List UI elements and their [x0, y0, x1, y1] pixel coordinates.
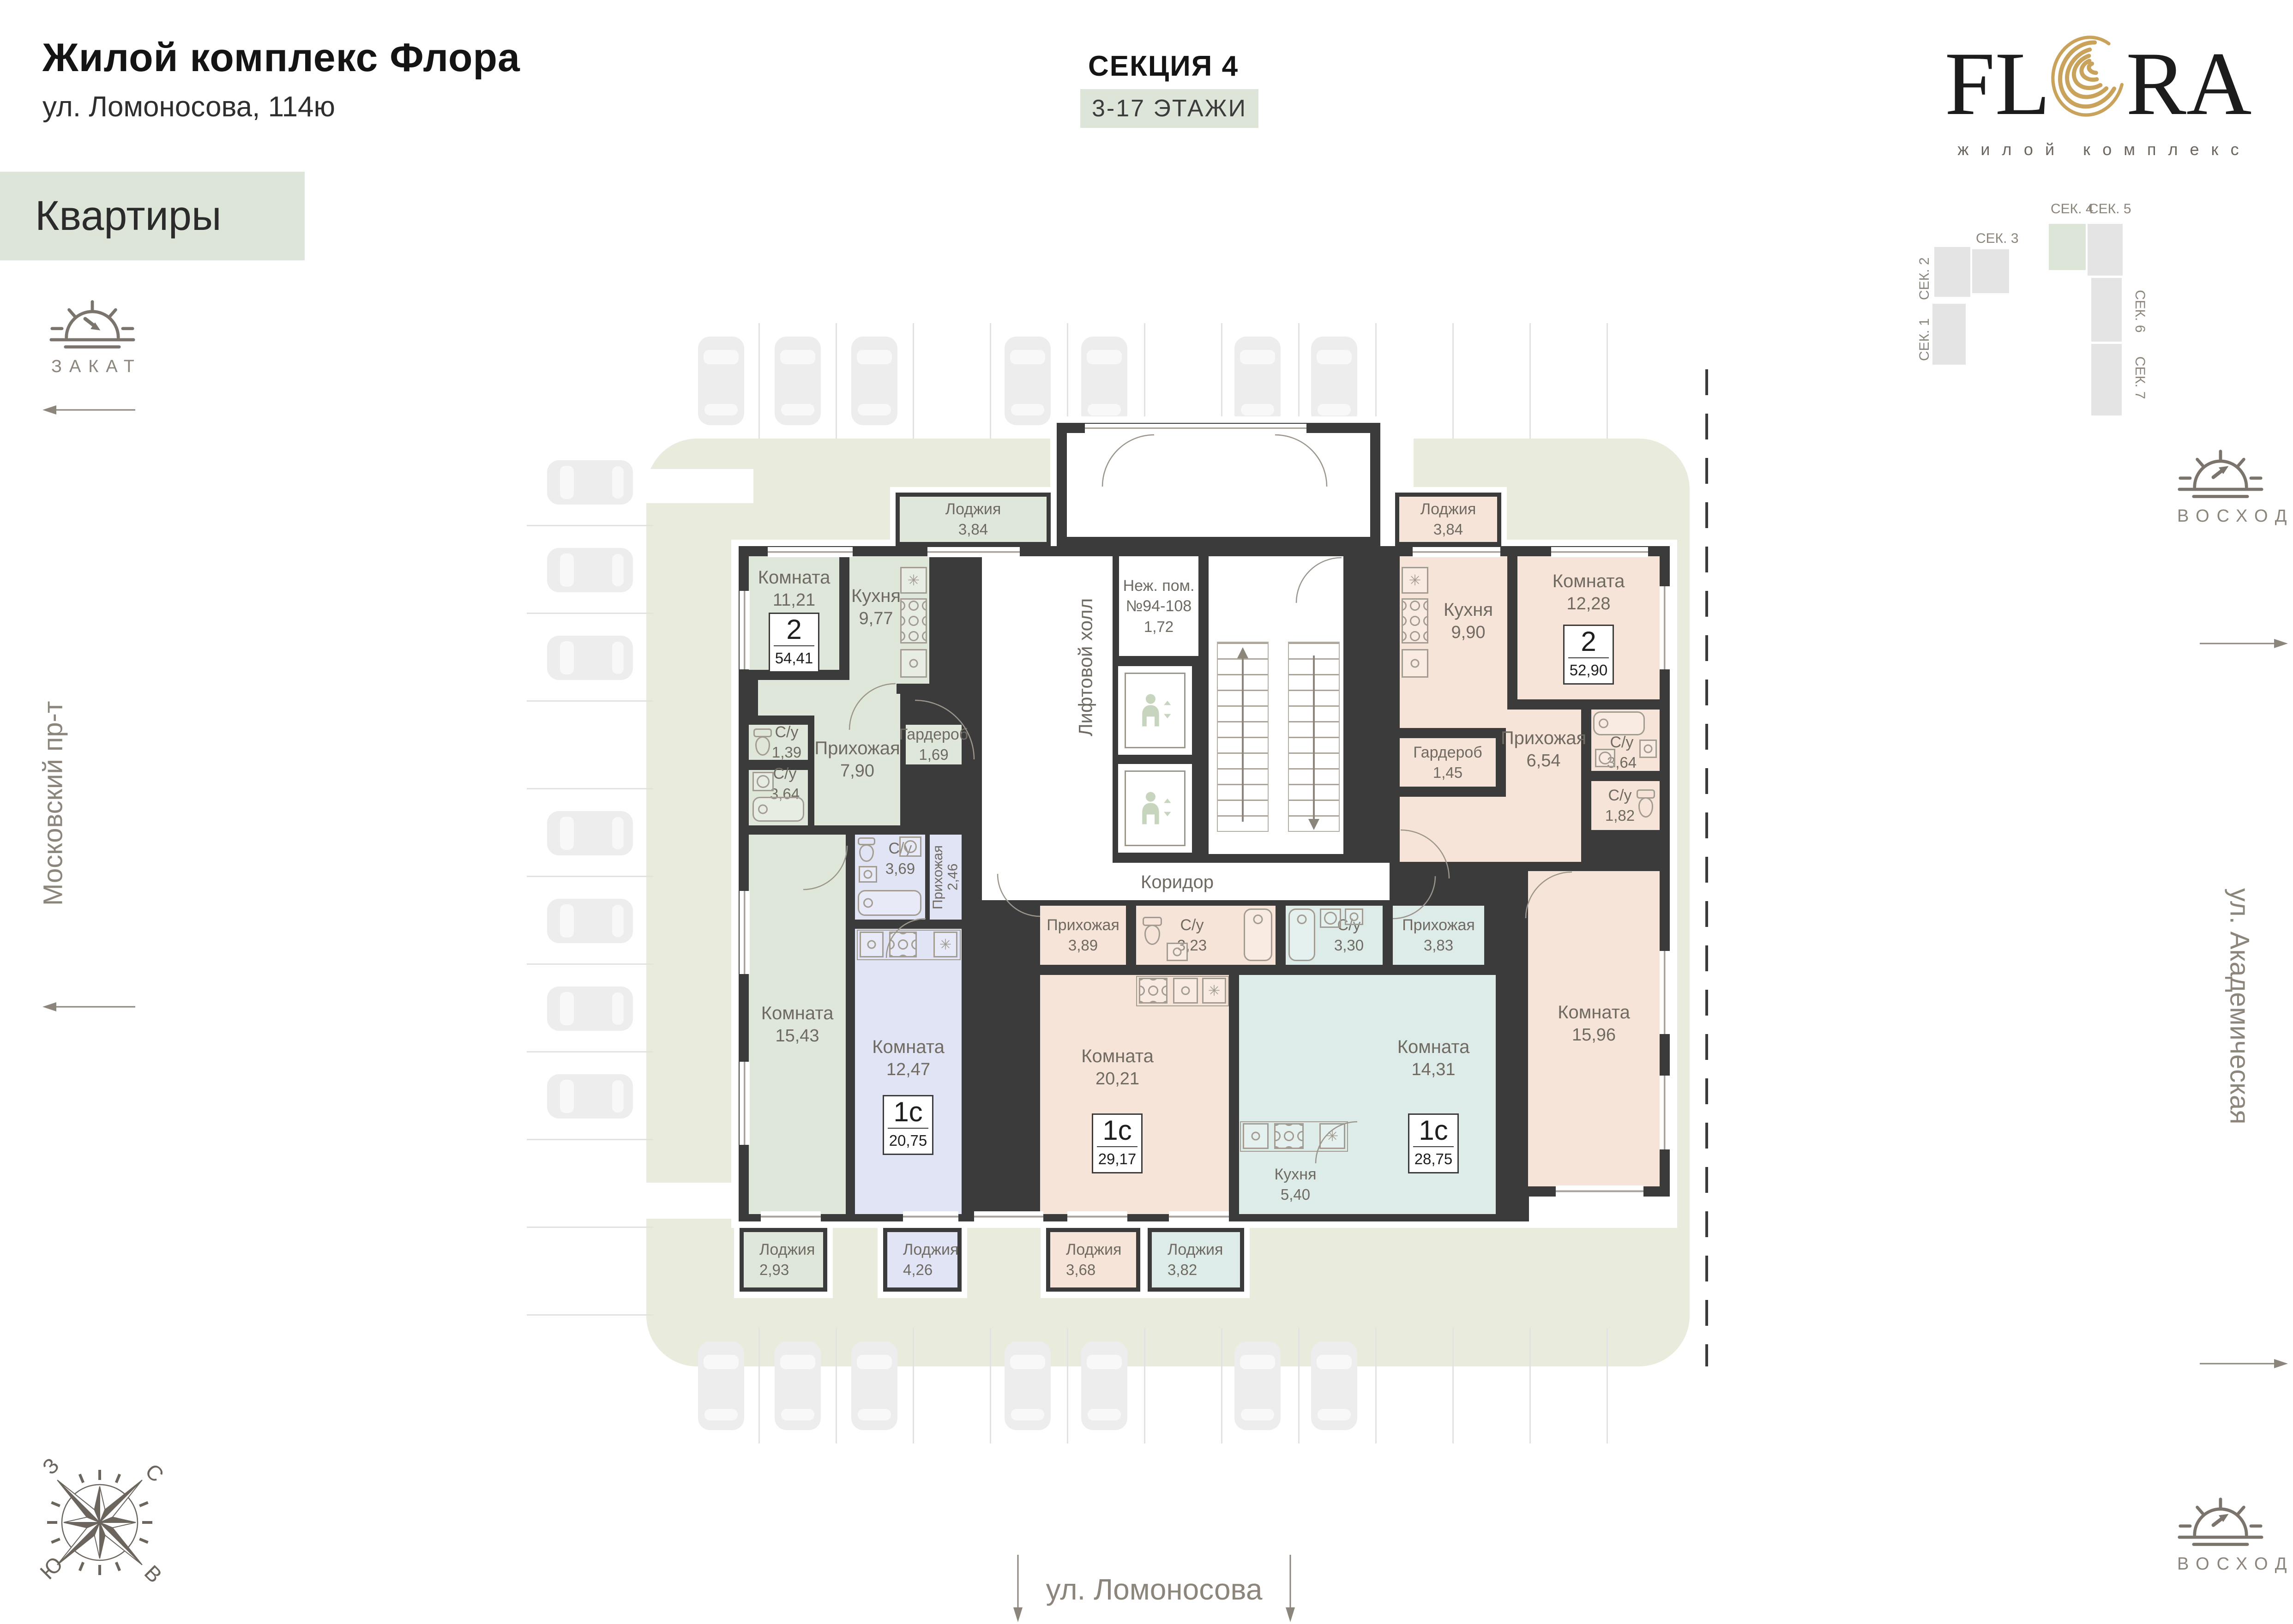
- lift-hall: [982, 556, 1113, 900]
- page-title: Жилой комплекс Флора: [42, 35, 520, 81]
- window: [1556, 1185, 1643, 1197]
- street-left-label: Московский пр-т: [33, 642, 73, 965]
- sink-icon: [1402, 649, 1428, 678]
- apartment-badge-1c-2917[interactable]: 1с29,17: [1092, 1113, 1143, 1173]
- car-icon: [851, 337, 897, 425]
- window: [740, 891, 750, 974]
- minimap-label-sek1: СЕК. 1: [1917, 310, 1932, 361]
- car-icon: [1234, 1341, 1281, 1430]
- sink-icon: [1243, 1123, 1269, 1149]
- fridge-icon: [933, 932, 957, 957]
- window: [903, 1211, 958, 1222]
- window: [1551, 547, 1648, 557]
- window: [1660, 951, 1670, 1034]
- minimap-block-sek7[interactable]: [2091, 344, 2122, 415]
- car-icon: [1081, 337, 1127, 425]
- bathtub-icon: [858, 890, 921, 916]
- toilet-icon: [858, 837, 875, 862]
- stair-flight: [1217, 642, 1269, 832]
- street-right-arrow-icon: [2197, 1356, 2290, 1371]
- minimap-block-sek5[interactable]: [2088, 224, 2123, 276]
- stove-icon: [900, 598, 927, 644]
- walkway: [643, 469, 753, 503]
- elevator-person-icon: [1134, 689, 1176, 732]
- corridor: [982, 863, 1390, 900]
- window: [1660, 1076, 1670, 1149]
- room-wardrobe-1-45[interactable]: Гардероб1,45: [1400, 738, 1496, 787]
- room-loggia-2-93[interactable]: Лоджия2,93: [740, 1228, 827, 1292]
- car-icon: [1005, 337, 1051, 425]
- logo-fl: FL: [1944, 39, 2050, 129]
- toilet-icon: [1143, 917, 1162, 945]
- room-loggia-green-top[interactable]: Лоджия3,84: [896, 493, 1051, 546]
- washing-machine-icon: [1320, 908, 1341, 928]
- stove-icon: [889, 932, 917, 957]
- sunrise-label: ВОСХОД: [2170, 506, 2271, 526]
- room-studio-12-47[interactable]: Комната12,47 1с20,75: [855, 929, 962, 1214]
- room-hall-3-89[interactable]: Прихожая3,89: [1040, 906, 1126, 965]
- bathtub-icon: [1244, 908, 1272, 961]
- sunset-icon: [46, 296, 138, 355]
- car-icon: [547, 986, 633, 1031]
- street-bottom-label: ул. Ломоносова: [1046, 1572, 1263, 1606]
- sunset-block: ЗАКАТ: [44, 296, 141, 377]
- page-address: ул. Ломоносова, 114ю: [42, 90, 335, 123]
- svg-text:Ю: Ю: [35, 1552, 67, 1584]
- nav-apartments-label: Квартиры: [0, 192, 222, 240]
- street-right-label: ул. Академическая: [2220, 669, 2259, 1343]
- arrow-down-icon: [1284, 1555, 1296, 1624]
- car-icon: [547, 460, 633, 505]
- sunset-label: ЗАКАТ: [44, 357, 141, 377]
- fridge-icon: [1202, 978, 1226, 1004]
- minimap-block-sek4-active[interactable]: [2049, 224, 2086, 270]
- street-left-arrow-icon: [41, 403, 138, 417]
- section-title: СЕКЦИЯ 4: [993, 50, 1334, 83]
- fridge-icon: [1402, 567, 1428, 594]
- window: [1085, 424, 1306, 433]
- room-loggia-3-82[interactable]: Лоджия3,82: [1148, 1228, 1244, 1292]
- car-icon: [547, 899, 633, 943]
- window: [1413, 547, 1500, 557]
- sunrise-icon: [2174, 1494, 2267, 1552]
- car-icon: [547, 1074, 633, 1119]
- room-wardrobe-1-69[interactable]: Гардероб1,69: [906, 725, 962, 764]
- car-icon: [1311, 1341, 1357, 1430]
- window: [740, 1062, 750, 1145]
- fridge-icon: [900, 567, 927, 594]
- nav-apartments[interactable]: Квартиры: [0, 172, 305, 260]
- window: [974, 1211, 1043, 1222]
- car-icon: [698, 337, 744, 425]
- fridge-icon: [1319, 1123, 1345, 1149]
- sunrise-block-bottom: ВОСХОД: [2170, 1494, 2271, 1574]
- washing-machine-icon: [752, 772, 774, 791]
- room-living-15-43[interactable]: Комната15,43: [749, 835, 846, 1214]
- stove-icon: [1274, 1123, 1304, 1149]
- parking-column-left: [527, 439, 653, 1316]
- apartment-badge-2-54[interactable]: 254,41: [769, 613, 819, 673]
- sink-icon: [1345, 908, 1363, 925]
- car-icon: [547, 548, 633, 592]
- room-living-11-21[interactable]: Комната11,21 254,41: [749, 556, 839, 670]
- window: [761, 1211, 821, 1222]
- logo-o-spiral-icon: [2046, 32, 2130, 135]
- room-studio-20-21[interactable]: Комната20,21 1с29,17: [1040, 975, 1229, 1214]
- toilet-icon: [1637, 789, 1655, 818]
- sink-icon: [860, 932, 884, 957]
- sink-icon: [859, 866, 877, 883]
- sunrise-label: ВОСХОД: [2170, 1554, 2271, 1574]
- minimap-block-sek6[interactable]: [2091, 278, 2122, 342]
- svg-text:С: С: [141, 1459, 169, 1486]
- arrow-down-icon: [1012, 1555, 1024, 1624]
- room-hall-7-90[interactable]: Прихожая7,90: [814, 694, 900, 825]
- car-icon: [1234, 337, 1281, 425]
- car-icon: [1005, 1341, 1051, 1430]
- window: [740, 591, 750, 669]
- minimap-label-sek2: СЕК. 2: [1917, 249, 1932, 300]
- room-studio-14-31[interactable]: Комната14,31 1с28,75: [1239, 975, 1496, 1214]
- bathtub-icon: [752, 797, 804, 822]
- elevator-shaft-1: [1118, 666, 1192, 755]
- room-loggia-3-68[interactable]: Лоджия3,68: [1046, 1228, 1140, 1292]
- minimap-label-sek5: СЕК. 5: [2088, 201, 2131, 217]
- stove-icon: [1402, 598, 1428, 644]
- window: [1169, 1211, 1229, 1222]
- svg-text:В: В: [140, 1560, 167, 1587]
- svg-text:З: З: [37, 1453, 63, 1479]
- elevator-person-icon: [1134, 787, 1176, 830]
- logo-ra: RA: [2126, 39, 2251, 129]
- stair-flight: [1288, 642, 1340, 832]
- car-icon: [1081, 1341, 1127, 1430]
- minimap-block-sek3[interactable]: [1972, 249, 2009, 293]
- minimap-label-sek7: СЕК. 7: [2132, 356, 2148, 407]
- sink-icon: [1167, 943, 1188, 961]
- room-loggia-4-26[interactable]: Лоджия4,26: [883, 1228, 962, 1292]
- room-living-12-28[interactable]: Комната12,28 252,90: [1517, 556, 1660, 699]
- sunrise-block-top: ВОСХОД: [2170, 446, 2271, 526]
- bathtub-icon: [1593, 711, 1645, 735]
- entrance-vestibule: [1067, 433, 1370, 537]
- minimap-block-sek2[interactable]: [1934, 247, 1970, 297]
- boundary-dashed-line: [1705, 369, 1708, 1366]
- logo-subtitle: жилой комплекс: [1937, 140, 2260, 159]
- street-left-arrow-icon: [41, 999, 138, 1014]
- room-hall-2-46[interactable]: Прихожая2,46: [930, 835, 962, 920]
- street-right-arrow-icon: [2197, 636, 2290, 651]
- sink-icon: [1173, 978, 1198, 1004]
- car-icon: [698, 1341, 744, 1430]
- bathtub-icon: [1288, 908, 1315, 961]
- window: [1660, 586, 1670, 669]
- apartment-badge-1c-2075[interactable]: 1с20,75: [883, 1095, 933, 1155]
- sink-icon: [1639, 740, 1657, 758]
- minimap-label-sek3: СЕК. 3: [1976, 231, 2019, 247]
- washing-machine-icon: [1595, 749, 1615, 767]
- sunrise-icon: [2174, 446, 2267, 504]
- floorplan-page: { "header": { "title": "Жилой комплекс Ф…: [0, 0, 2293, 1619]
- car-icon: [851, 1341, 897, 1430]
- toilet-icon: [753, 728, 772, 756]
- apartment-badge-1c-2875[interactable]: 1с28,75: [1408, 1113, 1459, 1173]
- car-icon: [1311, 337, 1357, 425]
- apartment-badge-2-5290[interactable]: 252,90: [1563, 625, 1614, 685]
- nonresidential-room[interactable]: Неж. пом.№94-1081,72: [1119, 556, 1198, 656]
- floors-badge: 3-17 ЭТАЖИ: [1080, 89, 1258, 128]
- window: [1067, 1211, 1127, 1222]
- street-bottom-block: ул. Ломоносова: [933, 1555, 1376, 1624]
- car-icon: [775, 337, 821, 425]
- sink-icon: [900, 649, 927, 678]
- car-icon: [547, 636, 633, 680]
- minimap-label-sek4: СЕК. 4: [2051, 201, 2094, 217]
- window: [768, 547, 853, 557]
- room-living-15-96[interactable]: Комната15,96: [1528, 871, 1660, 1186]
- car-icon: [775, 1341, 821, 1430]
- stove-icon: [1139, 978, 1168, 1004]
- elevator-shaft-2: [1118, 764, 1192, 853]
- room-hall-extension[interactable]: [1400, 797, 1581, 862]
- parking-row-bottom: [683, 1328, 1679, 1444]
- room-loggia-peach-top[interactable]: Лоджия3,84: [1395, 493, 1501, 546]
- minimap-label-sek6: СЕК. 6: [2132, 290, 2148, 341]
- washing-machine-icon: [899, 836, 921, 857]
- room-hall-3-83[interactable]: Прихожая3,83: [1393, 906, 1484, 965]
- car-icon: [547, 811, 633, 855]
- compass-rose-icon: З С Ю В: [30, 1453, 169, 1592]
- window: [927, 547, 1020, 557]
- minimap-block-sek1[interactable]: [1932, 304, 1966, 365]
- flora-logo: FL RA жилой комплекс: [1937, 32, 2260, 159]
